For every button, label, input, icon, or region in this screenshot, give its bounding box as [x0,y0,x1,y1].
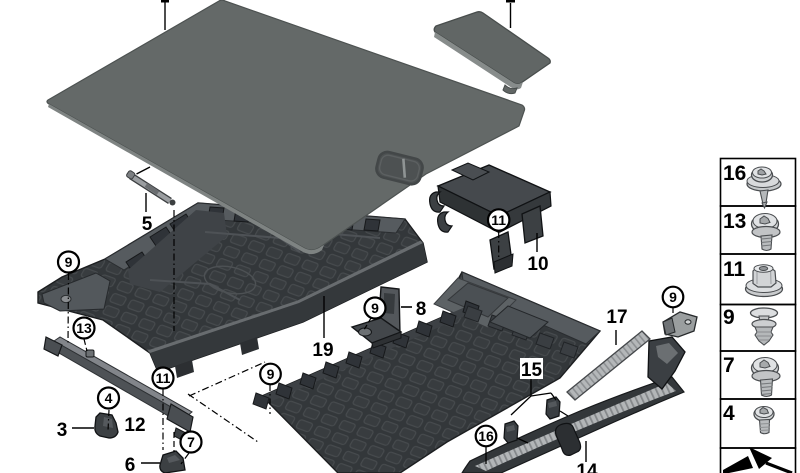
svg-text:3: 3 [57,420,68,441]
svg-text:7: 7 [187,434,195,450]
svg-text:16: 16 [723,162,746,185]
svg-text:11: 11 [156,370,171,386]
svg-text:13: 13 [76,320,92,336]
svg-text:4: 4 [723,402,735,425]
svg-text:19: 19 [312,340,333,361]
svg-text:4: 4 [105,390,113,406]
svg-text:9: 9 [65,254,73,270]
svg-text:16: 16 [478,428,494,444]
svg-text:11: 11 [491,212,506,228]
svg-text:6: 6 [125,455,136,473]
svg-text:9: 9 [723,306,735,329]
svg-text:8: 8 [416,299,427,320]
svg-text:15: 15 [521,360,543,381]
svg-text:13: 13 [723,210,746,233]
svg-text:9: 9 [267,366,275,382]
svg-text:9: 9 [669,289,677,305]
svg-text:10: 10 [527,254,548,275]
svg-text:12: 12 [124,415,145,436]
svg-text:5: 5 [142,214,153,235]
svg-text:17: 17 [606,307,627,328]
svg-text:14: 14 [576,461,598,473]
svg-text:7: 7 [723,354,735,377]
svg-text:9: 9 [371,300,379,316]
svg-text:11: 11 [723,258,746,281]
